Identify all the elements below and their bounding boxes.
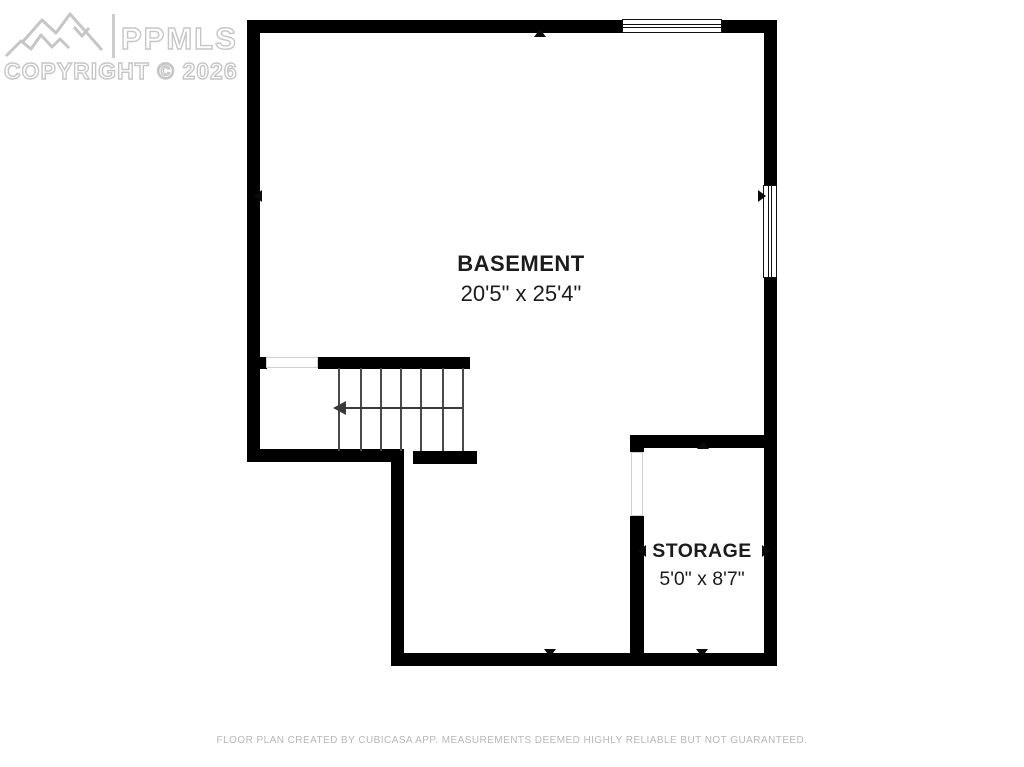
stair-step (462, 368, 464, 451)
watermark-copyright: COPYRIGHT © 2026 (4, 60, 238, 83)
mountain-range-icon (4, 6, 106, 58)
stair-step (380, 368, 382, 451)
window-icon-top (622, 19, 722, 33)
stair-direction-line (345, 407, 462, 409)
room-label-storage: STORAGE 5'0" x 8'7" (622, 539, 782, 591)
wall-stairs-bottom-right (413, 451, 477, 464)
wall-left (247, 20, 260, 462)
wall-marker-icon (254, 190, 262, 202)
wall-marker-icon (534, 29, 546, 37)
wall-lower-left (391, 449, 404, 666)
stair-step (420, 368, 422, 451)
stair-step (442, 368, 444, 451)
wall-storage-left-stub (630, 435, 644, 452)
watermark-divider (112, 14, 115, 58)
stair-direction-arrow-icon (333, 401, 346, 415)
stair-step (360, 368, 362, 451)
wall-bottom (391, 653, 777, 666)
room-label-basement: BASEMENT 20'5" x 25'4" (411, 251, 631, 307)
watermark-brand: PPMLS (121, 23, 238, 54)
opening-stairs (266, 357, 318, 368)
opening-storage-door (631, 452, 643, 516)
footer-disclaimer: FLOOR PLAN CREATED BY CUBICASA APP. MEAS… (0, 735, 1024, 746)
room-name: STORAGE (622, 539, 782, 563)
wall-marker-icon (696, 649, 708, 657)
watermark: PPMLS COPYRIGHT © 2026 (4, 6, 238, 83)
wall-marker-icon (758, 190, 766, 202)
room-dimensions: 20'5" x 25'4" (411, 281, 631, 307)
room-name: BASEMENT (411, 251, 631, 277)
room-dimensions: 5'0" x 8'7" (622, 567, 782, 591)
wall-marker-icon (544, 649, 556, 657)
stair-step (400, 368, 402, 451)
wall-marker-icon (697, 441, 709, 449)
